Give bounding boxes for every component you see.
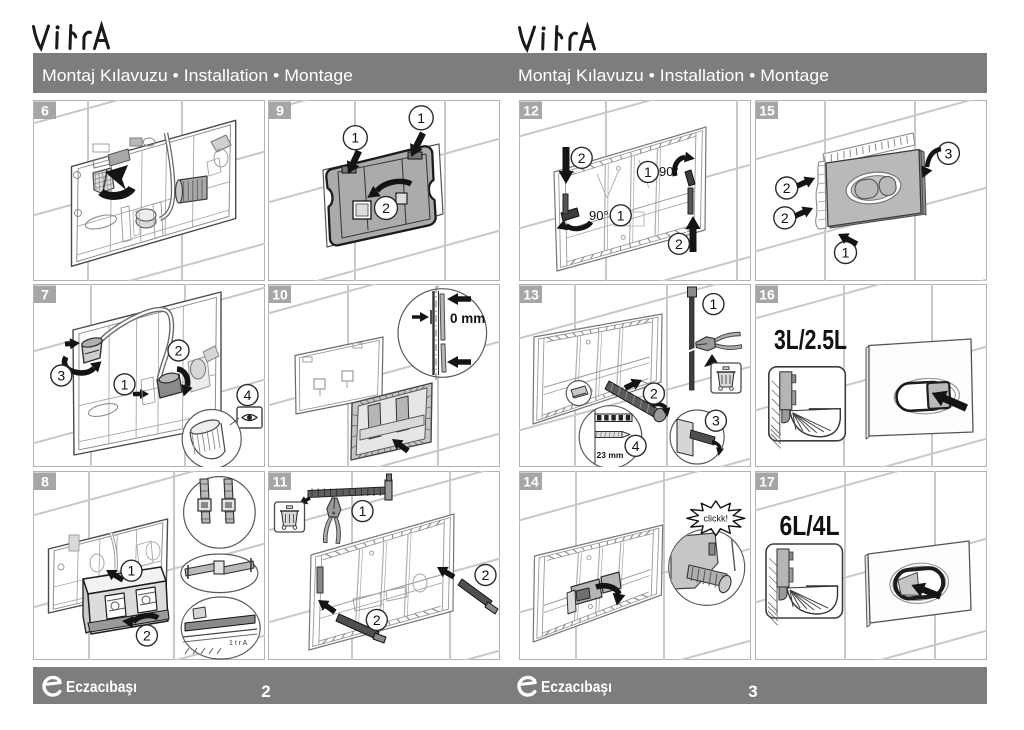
svg-text:6L/4L: 6L/4L [780,510,840,541]
svg-text:Eczacıbaşı: Eczacıbaşı [66,679,137,696]
svg-text:23 mm: 23 mm [597,450,624,460]
svg-text:3: 3 [945,145,953,161]
svg-text:3L/2.5L: 3L/2.5L [774,324,847,355]
svg-text:4: 4 [244,387,252,403]
svg-text:2: 2 [175,343,183,359]
svg-text:3: 3 [57,368,65,384]
svg-text:7: 7 [41,287,49,303]
svg-text:Montaj Kılavuzu • Installation: Montaj Kılavuzu • Installation • Montage [518,67,829,85]
svg-text:1: 1 [710,296,718,312]
svg-text:90°: 90° [589,208,609,223]
svg-text:1: 1 [417,110,425,126]
svg-text:13: 13 [523,287,539,303]
svg-text:2: 2 [783,180,791,196]
svg-text:14: 14 [523,474,539,490]
svg-text:3: 3 [748,682,757,701]
svg-text:2: 2 [373,612,381,628]
svg-text:8: 8 [41,474,49,490]
svg-text:2: 2 [781,210,789,226]
svg-text:1: 1 [351,130,359,146]
svg-text:1: 1 [617,207,625,223]
svg-text:1: 1 [644,164,652,180]
svg-text:Montaj Kılavuzu • Installation: Montaj Kılavuzu • Installation • Montage [42,67,353,85]
svg-text:1: 1 [121,376,129,392]
svg-text:11: 11 [273,474,288,490]
svg-text:2: 2 [261,682,270,701]
svg-text:2: 2 [382,200,390,216]
svg-text:2: 2 [482,567,490,583]
svg-text:12: 12 [523,103,539,119]
svg-text:2: 2 [578,150,586,166]
svg-text:10: 10 [272,287,288,303]
svg-text:1: 1 [359,503,367,519]
svg-text:9: 9 [276,103,284,119]
svg-text:1 t r A: 1 t r A [229,640,248,647]
svg-text:0 mm: 0 mm [450,311,485,326]
svg-text:3: 3 [712,413,720,429]
svg-text:1: 1 [842,245,850,261]
svg-text:2: 2 [143,627,151,643]
svg-text:1: 1 [128,563,136,579]
svg-text:6: 6 [41,103,49,119]
svg-text:15: 15 [759,103,775,119]
svg-text:16: 16 [759,287,775,303]
svg-text:2: 2 [675,236,683,252]
svg-text:clickk!: clickk! [704,514,729,524]
svg-text:4: 4 [632,438,640,454]
svg-text:2: 2 [650,386,658,402]
svg-text:Eczacıbaşı: Eczacıbaşı [541,679,612,696]
svg-text:17: 17 [759,474,775,490]
